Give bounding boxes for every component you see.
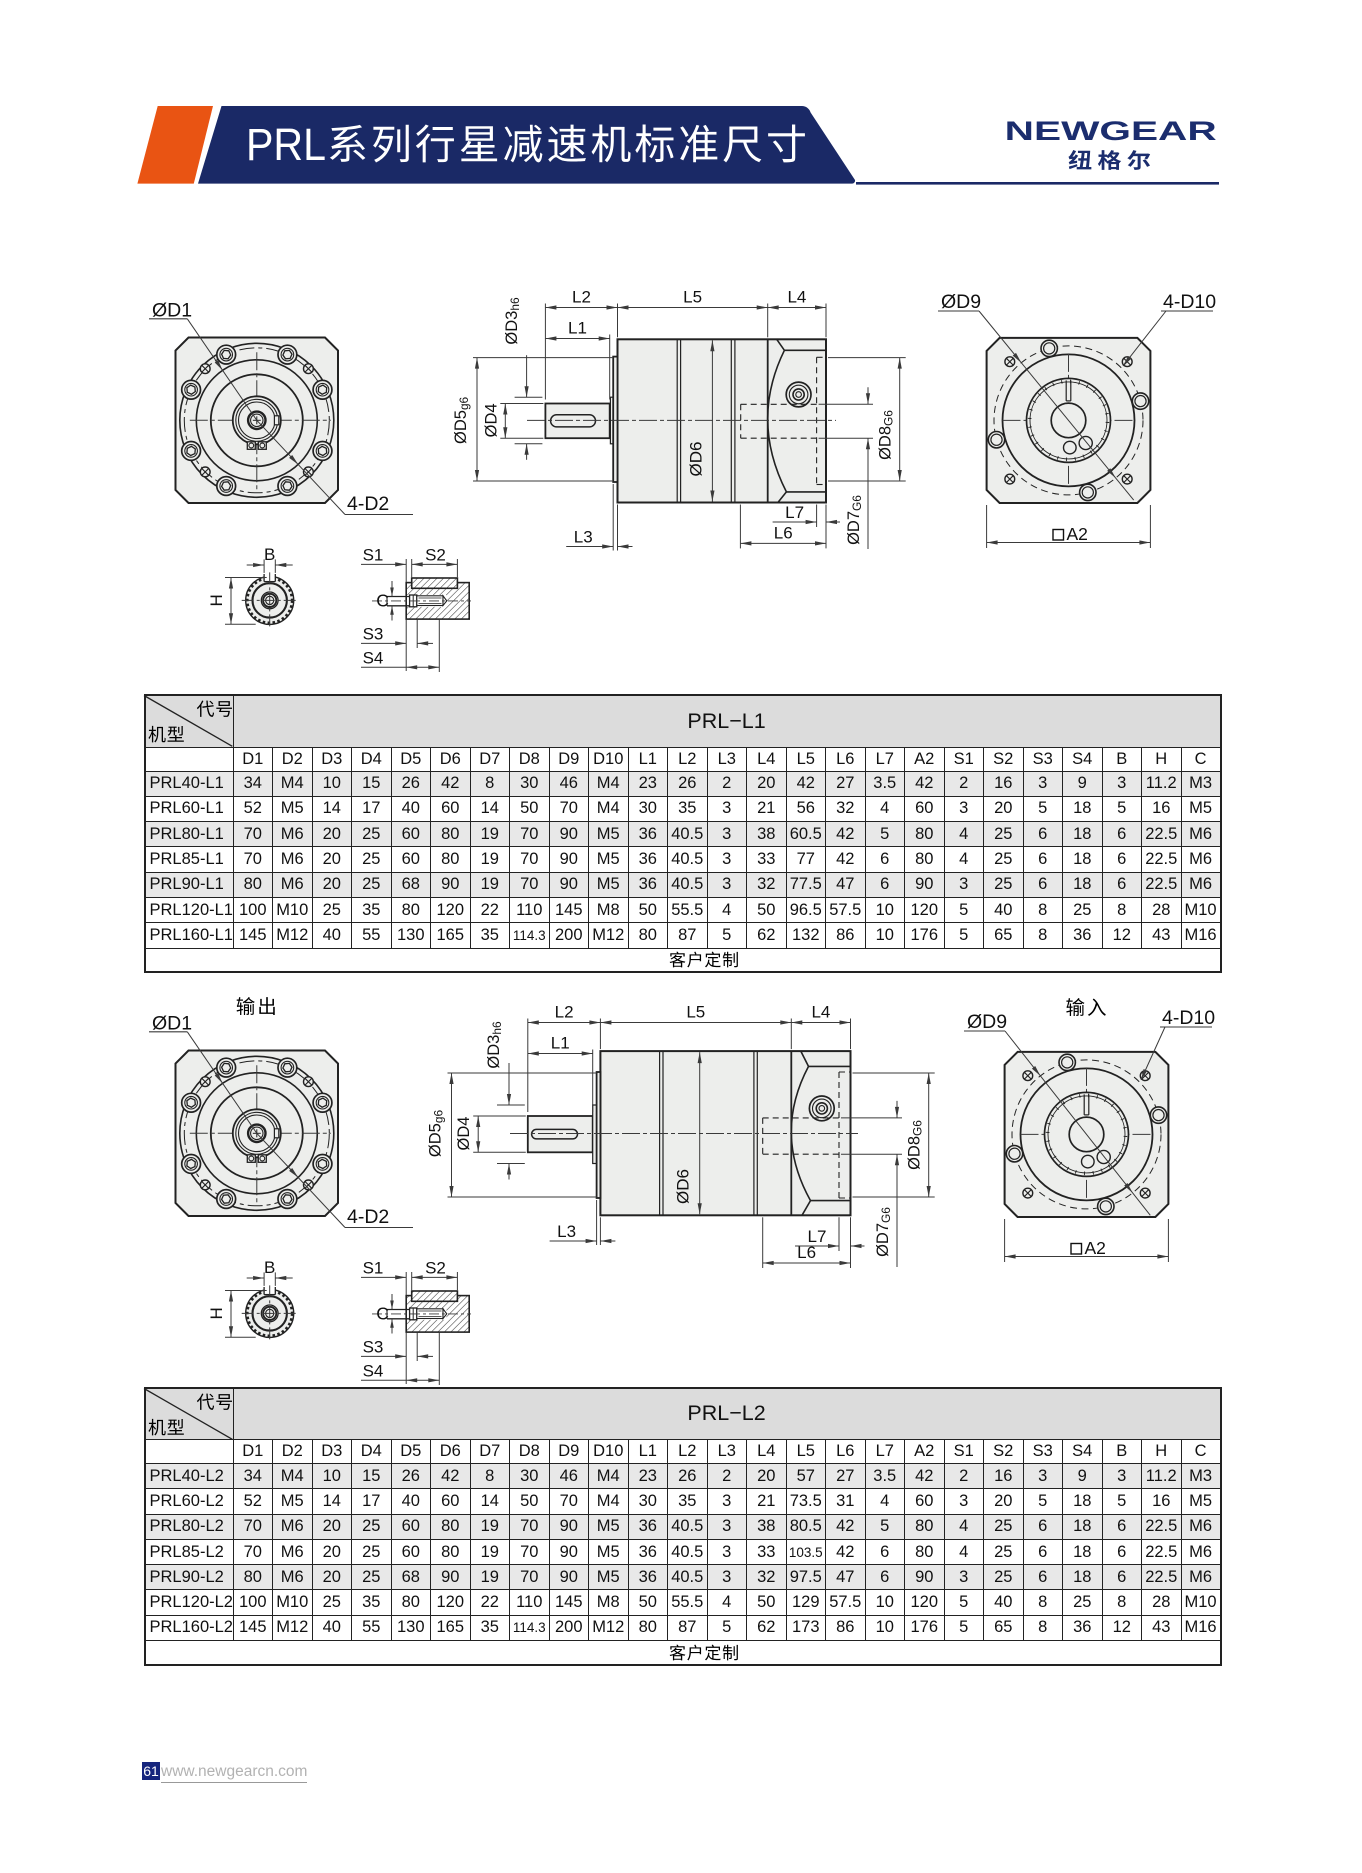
- svg-text:H: H: [207, 594, 226, 606]
- svg-text:L6: L6: [774, 523, 793, 542]
- svg-text:L5: L5: [683, 288, 702, 307]
- svg-text:ØD1: ØD1: [152, 1013, 192, 1035]
- svg-text:C: C: [376, 1304, 389, 1324]
- svg-text:NEWGEAR: NEWGEAR: [1005, 116, 1217, 146]
- svg-text:ØD9: ØD9: [967, 1011, 1007, 1033]
- svg-text:A2: A2: [1085, 1238, 1106, 1258]
- svg-text:S3: S3: [363, 624, 384, 643]
- svg-text:PRL: PRL: [246, 119, 326, 170]
- svg-text:L2: L2: [555, 1003, 574, 1022]
- svg-text:L2: L2: [572, 288, 591, 307]
- svg-text:4-D10: 4-D10: [1163, 291, 1216, 313]
- svg-text:A2: A2: [1067, 524, 1088, 544]
- svg-text:C: C: [376, 591, 389, 611]
- svg-text:S4: S4: [363, 1361, 384, 1380]
- svg-text:B: B: [264, 1258, 275, 1277]
- svg-text:L3: L3: [574, 528, 593, 547]
- svg-text:ØD5g6: ØD5g6: [427, 1110, 446, 1158]
- svg-text:L5: L5: [686, 1003, 705, 1022]
- svg-text:B: B: [264, 545, 275, 564]
- svg-text:S2: S2: [425, 545, 446, 564]
- svg-text:ØD5g6: ØD5g6: [452, 396, 471, 444]
- svg-text:S1: S1: [363, 545, 384, 564]
- svg-text:ØD4: ØD4: [455, 1117, 473, 1151]
- svg-text:L1: L1: [551, 1034, 570, 1053]
- svg-text:4-D2: 4-D2: [347, 1206, 389, 1228]
- svg-text:ØD3h6: ØD3h6: [503, 297, 522, 345]
- svg-text:ØD9: ØD9: [941, 291, 981, 313]
- svg-text:S1: S1: [363, 1258, 384, 1277]
- svg-text:4-D2: 4-D2: [347, 493, 389, 515]
- svg-text:ØD8G6: ØD8G6: [877, 410, 896, 460]
- svg-text:L4: L4: [811, 1003, 830, 1022]
- svg-text:ØD1: ØD1: [152, 300, 192, 322]
- svg-text:ØD8G6: ØD8G6: [906, 1120, 925, 1170]
- svg-text:L7: L7: [785, 503, 804, 522]
- svg-text:ØD7G6: ØD7G6: [874, 1207, 893, 1257]
- svg-text:L4: L4: [787, 288, 806, 307]
- svg-text:ØD6: ØD6: [686, 442, 705, 477]
- svg-text:S4: S4: [363, 648, 384, 667]
- svg-text:ØD3h6: ØD3h6: [485, 1021, 504, 1069]
- svg-text:ØD4: ØD4: [482, 403, 500, 437]
- svg-text:L6: L6: [797, 1243, 816, 1262]
- svg-text:S3: S3: [363, 1337, 384, 1356]
- svg-text:ØD7G6: ØD7G6: [845, 495, 864, 545]
- svg-text:S2: S2: [425, 1258, 446, 1277]
- svg-text:L3: L3: [557, 1222, 576, 1241]
- svg-text:ØD6: ØD6: [674, 1169, 693, 1204]
- svg-text:H: H: [207, 1307, 226, 1319]
- svg-text:L1: L1: [568, 319, 587, 338]
- svg-text:4-D10: 4-D10: [1162, 1007, 1215, 1029]
